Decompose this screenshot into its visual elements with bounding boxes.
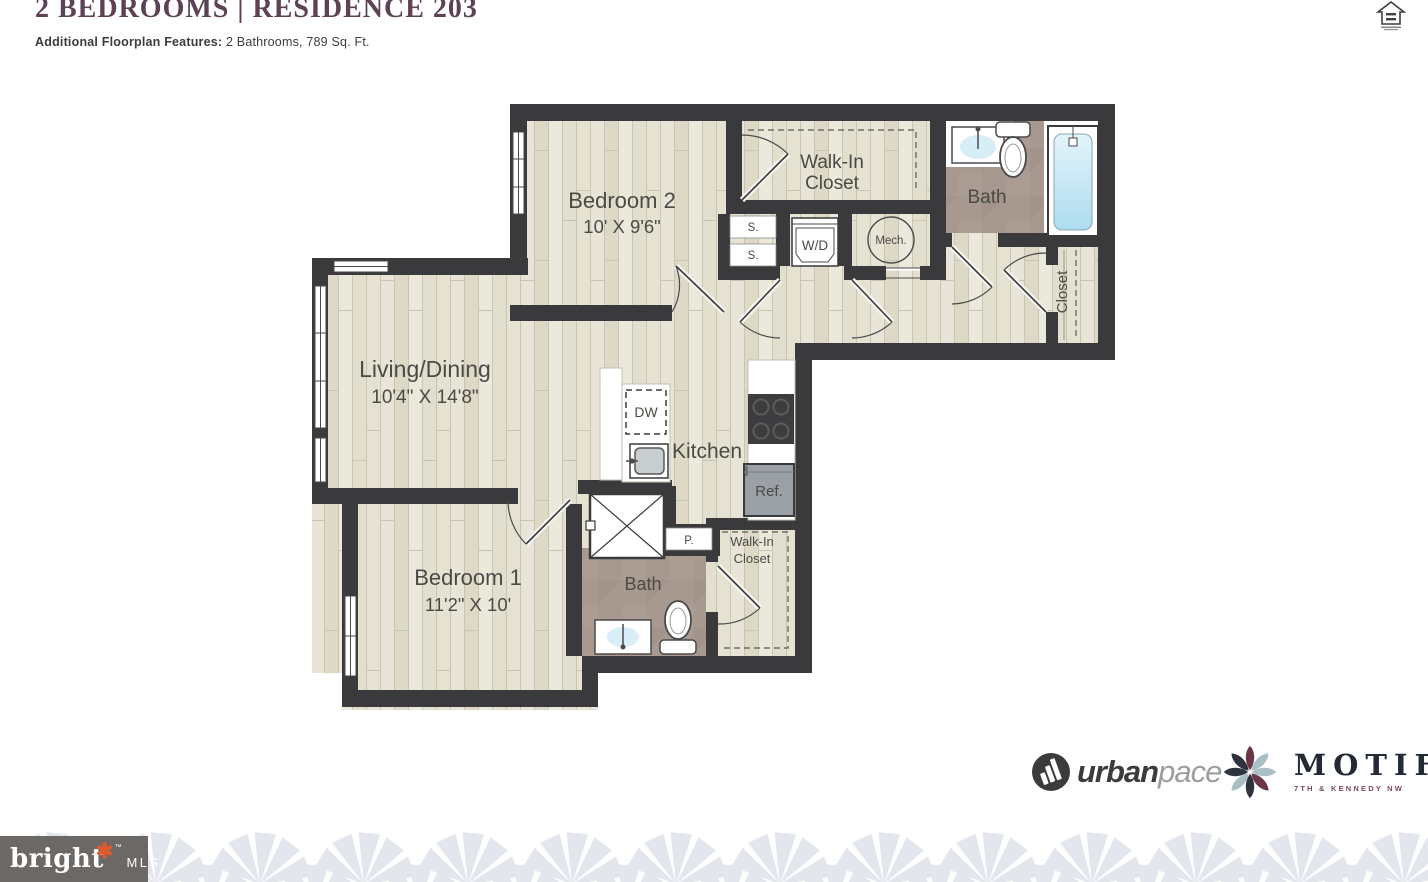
- dw-label: DW: [634, 404, 658, 420]
- bedroom1-dims: 11'2" X 10': [425, 594, 511, 615]
- urbanpace-logo: urbanpace: [1030, 751, 1221, 793]
- brightmls-suffix: MLS: [126, 855, 160, 870]
- bath-bottom-sink: [595, 620, 651, 654]
- pattern-band: [0, 818, 1428, 882]
- brightmls-star-icon: ✱: [96, 839, 114, 864]
- window-living-top: [334, 261, 388, 272]
- kitchen-sink-icon: [626, 444, 668, 478]
- mech-label: Mech.: [875, 235, 906, 247]
- bathtub-icon: [1048, 126, 1098, 236]
- shelf-s1-label: S.: [748, 222, 759, 234]
- urbanpace-icon: [1030, 751, 1072, 793]
- urbanpace-wordmark: urbanpace: [1077, 754, 1221, 790]
- motif-logo: MOTIF 7TH & KENNEDY NW: [1222, 744, 1428, 800]
- walkin-bottom-label-2: Closet: [734, 551, 771, 566]
- brightmls-tm: ™: [114, 844, 121, 851]
- bath-bottom-label: Bath: [624, 574, 661, 594]
- closet-right-label: Closet: [1054, 270, 1071, 313]
- equal-housing-icon: [1376, 0, 1406, 37]
- walkin-top-label-2: Closet: [805, 173, 860, 194]
- stove-icon: [748, 394, 794, 444]
- living-dims: 10'4" X 14'8": [371, 387, 478, 408]
- motif-pinwheel-icon: [1222, 744, 1278, 800]
- bedroom2-label: Bedroom 2: [568, 188, 676, 213]
- floorplan-page: 2 BEDROOMS | RESIDENCE 203 Additional Fl…: [0, 0, 1428, 882]
- living-label: Living/Dining: [359, 356, 491, 382]
- motif-wordmark: MOTIF 7TH & KENNEDY NW: [1294, 751, 1428, 793]
- window-living-left-2: [315, 438, 326, 482]
- brightmls-logo: bright✱™MLS: [0, 836, 148, 882]
- bedroom2-dims: 10' X 9'6": [583, 216, 660, 237]
- walkin-bottom-label-1: Walk-In: [730, 534, 774, 549]
- kitchen-label: Kitchen: [672, 440, 742, 463]
- kitchen-counter-left: [600, 368, 622, 480]
- window-bedroom1: [345, 596, 356, 676]
- features-label: Additional Floorplan Features:: [35, 35, 222, 49]
- motif-tagline: 7TH & KENNEDY NW: [1294, 784, 1428, 793]
- walkin-top-label-1: Walk-In: [800, 152, 864, 173]
- urbanpace-word-urban: urban: [1077, 754, 1158, 789]
- wd-label: W/D: [802, 238, 828, 253]
- ref-label: Ref.: [755, 483, 783, 500]
- shelf-s2-label: S.: [748, 250, 759, 262]
- bedroom1-label: Bedroom 1: [414, 565, 522, 590]
- motif-name: MOTIF: [1294, 751, 1428, 780]
- features-line: Additional Floorplan Features: 2 Bathroo…: [35, 35, 478, 49]
- window-living-left-1: [315, 286, 326, 428]
- header: 2 BEDROOMS | RESIDENCE 203 Additional Fl…: [35, 0, 478, 49]
- shower-icon: [586, 494, 664, 558]
- brightmls-word: bright: [10, 844, 104, 874]
- floorplan-svg: Bedroom 2 10' X 9'6" Walk-In Closet Bath…: [310, 100, 1120, 718]
- features-value: 2 Bathrooms, 789 Sq. Ft.: [226, 35, 370, 49]
- bath-top-label: Bath: [967, 187, 1006, 208]
- pantry-label: P.: [684, 535, 693, 547]
- page-title: 2 BEDROOMS | RESIDENCE 203: [35, 0, 478, 25]
- window-bedroom2: [513, 132, 524, 214]
- urbanpace-word-pace: pace: [1158, 754, 1221, 789]
